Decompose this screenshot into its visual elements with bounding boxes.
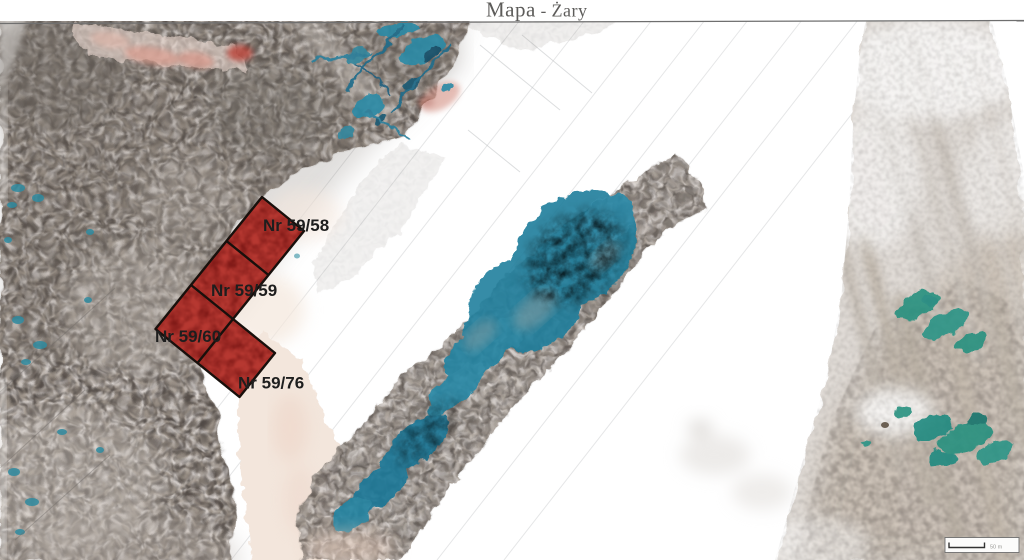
- svg-text:Nr 59/58: Nr 59/58: [263, 216, 329, 235]
- svg-text:Nr 59/76: Nr 59/76: [238, 374, 304, 393]
- svg-text:Nr 59/59: Nr 59/59: [211, 281, 277, 300]
- svg-text:50 m: 50 m: [990, 545, 1003, 551]
- svg-text:Nr 59/60: Nr 59/60: [155, 327, 221, 346]
- svg-text:Mapa - Żary: Mapa - Żary: [486, 0, 587, 22]
